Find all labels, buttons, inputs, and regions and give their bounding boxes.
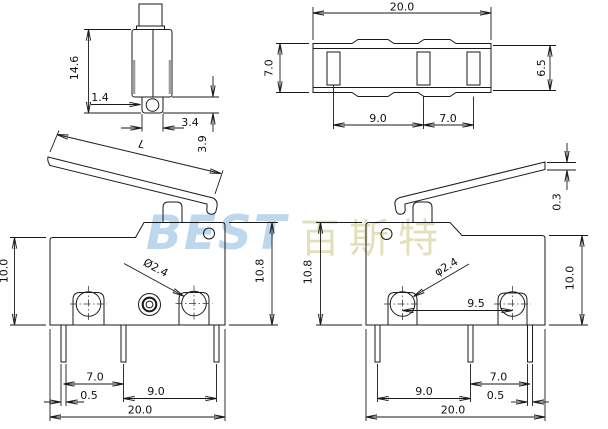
front-view-right: 0.3 φ2.4 9.5 10.8 (302, 143, 589, 421)
lever-right (395, 162, 545, 214)
dim-lever-thickness: 0.3 (551, 193, 564, 211)
dim-terminal-pitch-right: 7.0 (439, 112, 457, 125)
dim-tab-width: 3.4 (181, 116, 199, 129)
dim-body-height-right-view: 10.0 (564, 266, 577, 291)
pin-2-right-view (468, 325, 473, 362)
dim-pin-pitch-1-left-view: 7.0 (86, 371, 104, 384)
body-side (132, 30, 172, 98)
pin-3-right-view (528, 325, 533, 362)
dim-lever-length: L (137, 138, 146, 152)
dim-total-height-right-view: 10.8 (302, 260, 315, 285)
dim-hole-diameter-left-view: Ø2.4 (141, 256, 170, 280)
pin-1-right-view (375, 325, 380, 362)
dim-hole-offset: 1.4 (91, 91, 109, 104)
dim-top-depth-left: 7.0 (263, 59, 276, 77)
plunger-front-right (413, 202, 432, 222)
front-view-left: L Ø2.4 10.0 (0, 131, 278, 422)
dim-top-width: 20.0 (390, 1, 415, 14)
body-front-left (50, 223, 225, 326)
body-front-right (366, 223, 545, 326)
lever-left (48, 157, 217, 214)
terminal-3 (467, 52, 480, 85)
dim-total-width-right-view: 20.0 (441, 404, 466, 417)
dim-body-height-left-view: 10.0 (0, 259, 11, 284)
mount-hole-side (146, 99, 159, 112)
dim-total-width-left-view: 20.0 (128, 404, 153, 417)
plunger-side (139, 4, 162, 26)
dim-side-height: 14.6 (68, 56, 81, 81)
microswitch-technical-drawing: 14.6 1.4 3.4 3.9 (0, 0, 608, 429)
mount-tab-side (142, 97, 163, 113)
pivot-hole-right-view (381, 229, 392, 240)
terminal-1 (327, 52, 340, 85)
dim-total-height-left-view: 10.8 (254, 259, 267, 284)
plunger-front-left (163, 202, 182, 223)
dim-hole-pitch: 9.5 (467, 297, 485, 310)
dim-top-depth-right: 6.5 (535, 59, 548, 77)
top-view: 20.0 7.0 6.5 9.0 7.0 (263, 1, 557, 130)
pin-2-left-view (121, 325, 126, 362)
dim-pin-pitch-1-right-view: 9.0 (415, 385, 433, 398)
center-boss-hole (146, 301, 153, 308)
dim-pin-pitch-2-right-view: 7.0 (490, 371, 508, 384)
dim-pin-pitch-2-left-view: 9.0 (147, 385, 165, 398)
dim-pin-width-left-view: 0.5 (80, 389, 98, 402)
dim-tab-depth: 3.9 (196, 135, 209, 153)
terminal-2 (417, 52, 430, 85)
engineering-drawing-canvas: BEST 百斯特 14.6 1.4 (0, 0, 608, 429)
center-boss-ring (143, 298, 157, 312)
dim-hole-diameter-right-view: φ2.4 (432, 255, 460, 279)
pivot-hole-left-view (204, 228, 215, 239)
pin-3-left-view (214, 325, 219, 362)
side-view: 14.6 1.4 3.4 3.9 (68, 4, 219, 153)
dim-terminal-pitch-left: 9.0 (369, 112, 387, 125)
dim-pin-width-right-view: 0.5 (487, 389, 505, 402)
pin-1-left-view (61, 325, 66, 362)
